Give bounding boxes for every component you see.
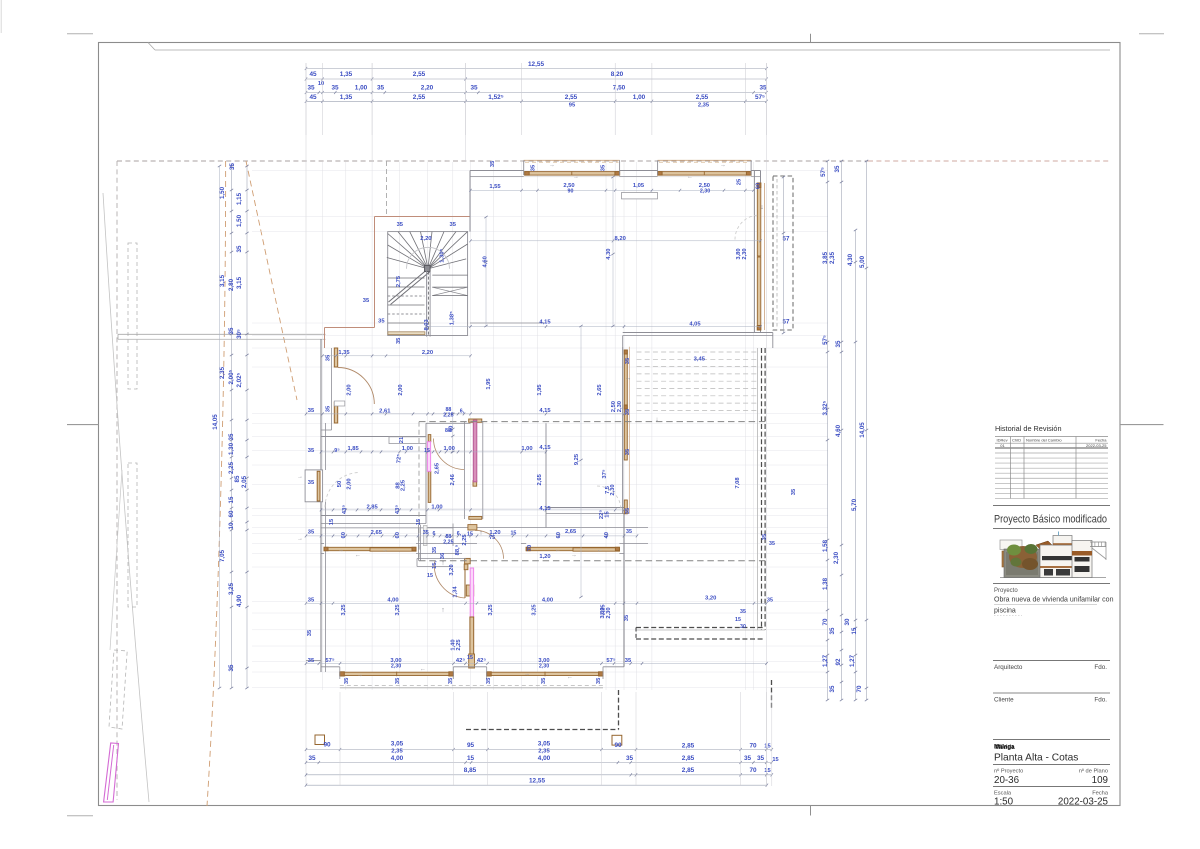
svg-text:2,25: 2,25	[443, 539, 453, 545]
svg-text:4,00: 4,00	[387, 598, 398, 604]
svg-text:1,50: 1,50	[219, 186, 226, 199]
svg-text:3,25: 3,25	[532, 604, 538, 616]
svg-text:36: 36	[440, 552, 446, 559]
svg-text:1:50: 1:50	[994, 797, 1014, 808]
svg-text:35: 35	[791, 488, 797, 495]
svg-text:3,25: 3,25	[341, 604, 347, 616]
svg-text:ChID: ChID	[1012, 438, 1021, 443]
svg-text:35: 35	[307, 85, 315, 92]
svg-text:8,03: 8,03	[424, 318, 430, 330]
svg-text:1,50: 1,50	[236, 214, 243, 227]
svg-text:1,00: 1,00	[402, 446, 413, 452]
svg-text:3,25: 3,25	[395, 604, 401, 616]
svg-text:35: 35	[625, 448, 631, 455]
svg-text:35: 35	[486, 677, 492, 684]
svg-text:1,55: 1,55	[489, 184, 501, 190]
svg-text:10: 10	[318, 81, 324, 87]
svg-text:35: 35	[228, 327, 235, 334]
svg-text:3,15: 3,15	[236, 276, 243, 289]
svg-text:57⁵: 57⁵	[820, 167, 827, 177]
svg-text:Nombre del Cambio: Nombre del Cambio	[1026, 438, 1062, 443]
svg-text:90: 90	[614, 742, 622, 749]
svg-text:1,52⁵: 1,52⁵	[488, 94, 503, 101]
svg-text:10: 10	[228, 522, 235, 529]
svg-text:14,05: 14,05	[859, 422, 866, 438]
svg-text:2,25: 2,25	[228, 461, 235, 474]
svg-text:15: 15	[416, 518, 422, 525]
svg-text:3,25: 3,25	[228, 582, 235, 595]
svg-text:←: ←	[355, 553, 361, 559]
svg-text:12,55: 12,55	[529, 777, 545, 784]
svg-text:6,: 6,	[457, 531, 462, 537]
svg-text:12,55: 12,55	[528, 61, 544, 68]
svg-text:35: 35	[377, 85, 385, 92]
svg-text:35: 35	[625, 408, 631, 415]
svg-text:1,58: 1,58	[822, 539, 829, 552]
svg-text:40: 40	[604, 532, 610, 538]
svg-text:2,35: 2,35	[538, 749, 550, 755]
svg-text:70: 70	[856, 685, 863, 692]
svg-text:Fecha: Fecha	[1095, 438, 1107, 443]
svg-text:nº de Plano: nº de Plano	[1079, 768, 1108, 775]
svg-text:Mérida: Mérida	[995, 745, 1015, 751]
svg-text:35: 35	[541, 677, 547, 684]
svg-text:2,30: 2,30	[700, 188, 710, 194]
svg-text:2022-03-25: 2022-03-25	[1058, 797, 1109, 808]
svg-text:35: 35	[829, 685, 836, 692]
svg-text:Cliente: Cliente	[994, 697, 1014, 704]
svg-text:2,65: 2,65	[371, 530, 383, 536]
svg-text:2,25: 2,25	[462, 534, 468, 546]
svg-text:2,00⁵: 2,00⁵	[228, 369, 235, 384]
svg-text:35: 35	[490, 160, 496, 167]
svg-text:35: 35	[829, 627, 836, 634]
svg-text:nº Proyecto: nº Proyecto	[994, 768, 1023, 775]
svg-text:42⁵: 42⁵	[477, 658, 486, 664]
svg-text:2,55: 2,55	[696, 94, 709, 101]
svg-text:35: 35	[307, 629, 313, 636]
svg-text:35: 35	[331, 85, 339, 92]
svg-text:35: 35	[432, 546, 438, 553]
svg-text:2,35: 2,35	[698, 103, 710, 109]
svg-text:IDRev: IDRev	[997, 438, 1008, 443]
svg-text:60: 60	[556, 532, 562, 538]
svg-text:→: →	[338, 548, 344, 554]
svg-text:Obra nueva de vivienda unifami: Obra nueva de vivienda unifamilar con	[994, 597, 1114, 604]
svg-text:3,85: 3,85	[822, 251, 829, 264]
svg-text:8,85: 8,85	[464, 767, 477, 774]
svg-text:1,27: 1,27	[849, 654, 856, 667]
svg-text:2,30: 2,30	[617, 401, 623, 412]
svg-text:1,00: 1,00	[355, 85, 368, 92]
svg-text:→: →	[720, 163, 726, 169]
svg-text:90: 90	[323, 742, 331, 749]
svg-text:60: 60	[341, 532, 347, 538]
svg-text:88,⁵: 88,⁵	[455, 544, 461, 555]
svg-text:35: 35	[308, 658, 315, 664]
svg-text:35: 35	[625, 507, 631, 514]
svg-text:←: ←	[567, 675, 573, 681]
svg-text:↓: ↓	[760, 204, 764, 211]
svg-text:1,05: 1,05	[633, 183, 645, 189]
svg-text:35: 35	[767, 598, 773, 604]
svg-text:4,00: 4,00	[391, 755, 404, 762]
svg-text:8,20: 8,20	[611, 71, 624, 78]
svg-text:95: 95	[569, 103, 576, 109]
svg-text:50: 50	[337, 481, 343, 487]
svg-text:35: 35	[625, 658, 632, 664]
svg-text:1,95: 1,95	[537, 384, 543, 396]
svg-text:90: 90	[568, 188, 574, 194]
svg-text:70: 70	[749, 742, 757, 749]
svg-text:60: 60	[228, 510, 235, 517]
svg-text:←: ←	[555, 548, 561, 554]
svg-text:15: 15	[467, 755, 475, 762]
svg-text:1,38: 1,38	[822, 577, 829, 590]
svg-text:35: 35	[326, 354, 332, 361]
svg-text:1,35: 1,35	[338, 350, 350, 356]
svg-text:1,34: 1,34	[453, 586, 459, 598]
svg-text:35: 35	[740, 609, 746, 615]
svg-text:70: 70	[749, 767, 757, 774]
svg-text:7,50: 7,50	[613, 85, 626, 92]
svg-text:70: 70	[527, 545, 533, 551]
svg-text:2,85: 2,85	[682, 755, 695, 762]
svg-text:35: 35	[308, 755, 316, 762]
svg-text:2,65: 2,65	[597, 384, 603, 396]
svg-text:2,35: 2,35	[391, 749, 403, 755]
svg-text:4,15: 4,15	[539, 506, 551, 512]
svg-text:4,15: 4,15	[539, 319, 551, 325]
svg-text:35: 35	[308, 480, 315, 486]
svg-text:2,55: 2,55	[565, 94, 578, 101]
svg-text:→: →	[549, 163, 555, 169]
svg-text:2,00: 2,00	[346, 478, 352, 489]
svg-text:2,20: 2,20	[421, 85, 434, 92]
svg-text:35: 35	[762, 533, 768, 540]
svg-text:45: 45	[309, 94, 317, 101]
svg-text:5,70: 5,70	[851, 498, 858, 511]
svg-text:109: 109	[1092, 775, 1108, 786]
svg-text:35: 35	[744, 755, 752, 762]
svg-text:2,55: 2,55	[413, 94, 426, 101]
svg-text:57⁵: 57⁵	[755, 94, 765, 101]
svg-text:2,00: 2,00	[398, 384, 404, 395]
svg-text:2,30: 2,30	[539, 664, 549, 670]
svg-text:2,20: 2,20	[420, 236, 431, 242]
svg-text:15: 15	[424, 448, 430, 454]
svg-text:35: 35	[326, 405, 332, 412]
svg-text:85: 85	[234, 475, 241, 482]
svg-text:→: →	[573, 174, 579, 180]
svg-text:3,20: 3,20	[705, 596, 716, 602]
svg-text:1,00: 1,00	[633, 94, 646, 101]
svg-text:4,60: 4,60	[482, 256, 488, 267]
svg-text:35: 35	[834, 165, 841, 172]
svg-text:←: ←	[687, 174, 693, 180]
svg-text:3,25: 3,25	[488, 604, 494, 616]
svg-text:35: 35	[397, 222, 404, 228]
svg-text:piscina: piscina	[994, 608, 1016, 615]
svg-text:43⁵: 43⁵	[395, 505, 401, 514]
svg-text:15: 15	[764, 768, 771, 774]
svg-text:1,15: 1,15	[236, 192, 243, 205]
svg-text:15: 15	[427, 573, 433, 579]
svg-text:30: 30	[844, 618, 851, 625]
svg-text:1,38⁵: 1,38⁵	[449, 311, 455, 325]
svg-text:→: →	[297, 474, 303, 480]
svg-text:57⁵: 57⁵	[606, 658, 615, 664]
svg-text:45: 45	[309, 71, 317, 78]
svg-text:2,25: 2,25	[456, 639, 462, 651]
svg-text:35: 35	[601, 164, 607, 171]
svg-text:35: 35	[363, 298, 370, 304]
svg-text:92: 92	[835, 658, 842, 665]
svg-text:15: 15	[467, 655, 473, 661]
svg-text:21: 21	[399, 436, 405, 443]
svg-text:1,35: 1,35	[340, 71, 353, 78]
svg-text:Fdo.: Fdo.	[1094, 697, 1107, 704]
svg-text:2,65: 2,65	[435, 462, 441, 474]
svg-text:57⁵: 57⁵	[822, 335, 829, 345]
svg-text:30⁵: 30⁵	[236, 329, 243, 339]
svg-text:7,08: 7,08	[735, 477, 741, 489]
svg-text:→: →	[571, 553, 577, 559]
svg-text:35: 35	[470, 85, 478, 92]
svg-text:35: 35	[423, 530, 429, 536]
svg-text:15: 15	[510, 530, 516, 536]
svg-text:88: 88	[445, 428, 451, 434]
svg-text:57⁵: 57⁵	[325, 658, 334, 664]
svg-text:15: 15	[228, 496, 235, 503]
svg-text:→: →	[625, 375, 632, 382]
svg-text:1,00: 1,00	[444, 446, 455, 452]
svg-text:2,75: 2,75	[396, 275, 402, 287]
svg-text:2,35: 2,35	[219, 366, 226, 379]
svg-text:9,25: 9,25	[574, 453, 580, 465]
svg-text:7,05: 7,05	[219, 549, 226, 562]
svg-text:←: ←	[420, 667, 426, 673]
svg-text:35: 35	[395, 677, 401, 684]
svg-text:4,30: 4,30	[847, 253, 854, 266]
svg-text:2,85: 2,85	[366, 505, 378, 511]
svg-text:8,20: 8,20	[615, 236, 626, 242]
svg-text:↓: ↓	[655, 416, 658, 423]
svg-text:72⁵: 72⁵	[396, 454, 402, 463]
svg-text:2,80: 2,80	[228, 278, 235, 291]
svg-text:35: 35	[759, 85, 767, 92]
svg-text:2,35: 2,35	[829, 251, 836, 264]
svg-text:4,05: 4,05	[689, 321, 701, 327]
svg-text:1,00: 1,00	[431, 505, 442, 511]
svg-text:↑: ↑	[479, 530, 483, 537]
svg-text:4,15: 4,15	[539, 408, 551, 414]
svg-text:35: 35	[236, 245, 243, 252]
svg-text:2,05: 2,05	[241, 475, 248, 488]
svg-text:1,30: 1,30	[228, 442, 235, 455]
svg-text:4,60: 4,60	[835, 424, 842, 437]
svg-text:35: 35	[625, 357, 631, 364]
svg-text:42⁵: 42⁵	[456, 658, 465, 664]
svg-text:35: 35	[596, 677, 602, 684]
svg-text:2,25: 2,25	[443, 412, 453, 418]
svg-text:Historial de Revisión: Historial de Revisión	[995, 424, 1062, 433]
svg-text:→: →	[297, 536, 303, 542]
svg-text:15: 15	[735, 617, 741, 623]
svg-text:35: 35	[228, 664, 235, 671]
svg-text:↑: ↑	[441, 607, 445, 614]
svg-text:Fdo.: Fdo.	[1094, 664, 1107, 671]
svg-text:14,05: 14,05	[212, 414, 219, 430]
svg-text:Arquitecto: Arquitecto	[994, 664, 1023, 671]
svg-text:4,30: 4,30	[606, 248, 612, 259]
svg-text:35: 35	[757, 755, 765, 762]
svg-text:2,30: 2,30	[742, 248, 748, 259]
svg-text:3,05: 3,05	[538, 741, 551, 748]
svg-text:2022-03-25: 2022-03-25	[1086, 443, 1107, 448]
svg-text:15: 15	[329, 518, 335, 525]
svg-text:2,25: 2,25	[401, 479, 407, 491]
svg-text:Planta Alta - Cotas: Planta Alta - Cotas	[994, 753, 1078, 764]
svg-text:←: ←	[597, 548, 603, 554]
svg-text:15: 15	[851, 627, 858, 634]
svg-text:2,02⁵: 2,02⁵	[236, 372, 243, 387]
svg-text:35: 35	[308, 598, 315, 604]
svg-text:↑: ↑	[441, 560, 445, 567]
svg-text:2,30: 2,30	[833, 551, 840, 564]
svg-text:15: 15	[772, 757, 778, 763]
svg-text:4,90: 4,90	[236, 594, 243, 607]
svg-text:1,30⁵: 1,30⁵	[440, 248, 446, 262]
svg-text:43⁵: 43⁵	[342, 505, 348, 514]
svg-text:6: 6	[433, 531, 436, 537]
svg-text:2,65: 2,65	[537, 473, 543, 485]
svg-text:15: 15	[605, 511, 611, 518]
svg-text:9⁵: 9⁵	[334, 448, 340, 454]
svg-text:2,20: 2,20	[422, 350, 433, 356]
svg-text:→: →	[524, 671, 530, 677]
svg-text:35: 35	[228, 433, 235, 440]
svg-text:1,35: 1,35	[340, 94, 353, 101]
svg-text:37⁵: 37⁵	[602, 469, 608, 478]
svg-text:35: 35	[308, 530, 315, 536]
svg-text:→: →	[357, 673, 363, 679]
svg-text:3,15: 3,15	[219, 274, 226, 287]
svg-text:35: 35	[448, 677, 454, 684]
svg-text:35: 35	[344, 677, 350, 684]
svg-text:2,30: 2,30	[606, 607, 612, 618]
svg-text:4,00: 4,00	[538, 755, 551, 762]
svg-text:1,85: 1,85	[347, 446, 359, 452]
svg-text:25: 25	[737, 178, 743, 185]
svg-text:4,00: 4,00	[542, 598, 553, 604]
svg-text:3,32⁵: 3,32⁵	[822, 400, 829, 415]
svg-text:60: 60	[395, 532, 401, 538]
svg-text:60: 60	[756, 183, 762, 189]
svg-text:15: 15	[764, 743, 771, 749]
svg-text:2,30: 2,30	[391, 664, 401, 670]
svg-text:35: 35	[229, 163, 236, 170]
svg-text:4,15: 4,15	[539, 445, 551, 451]
svg-text:3,20: 3,20	[449, 564, 455, 575]
svg-text:35: 35	[378, 319, 385, 325]
svg-text:01: 01	[1000, 443, 1005, 448]
svg-text:35: 35	[308, 448, 315, 454]
svg-text:3,05: 3,05	[391, 741, 404, 748]
svg-text:35: 35	[308, 408, 315, 414]
svg-text:35: 35	[396, 337, 402, 344]
svg-text:3,45: 3,45	[694, 357, 706, 363]
svg-text:70: 70	[822, 618, 829, 625]
svg-text:15,: 15,	[432, 561, 438, 569]
svg-text:2,55: 2,55	[413, 71, 426, 78]
svg-text:35: 35	[449, 222, 456, 228]
svg-text:20-36: 20-36	[994, 775, 1020, 786]
svg-text:2,85: 2,85	[682, 767, 695, 774]
svg-text:35: 35	[769, 541, 775, 547]
svg-text:75: 75	[489, 535, 495, 541]
svg-text:95: 95	[467, 742, 475, 749]
svg-text:1,95: 1,95	[486, 378, 492, 390]
svg-text:30: 30	[740, 624, 746, 630]
svg-text:1,27: 1,27	[822, 654, 829, 667]
svg-text:2,30: 2,30	[610, 484, 616, 495]
svg-text:5,00: 5,00	[859, 255, 866, 268]
svg-text:6,: 6,	[460, 408, 465, 414]
svg-text:35: 35	[624, 614, 630, 621]
svg-text:2,00: 2,00	[346, 384, 352, 395]
svg-text:2,61: 2,61	[379, 408, 391, 414]
svg-text:35: 35	[626, 755, 634, 762]
svg-text:1,00: 1,00	[521, 446, 532, 452]
svg-text:1,20: 1,20	[539, 554, 550, 560]
svg-text:2,46: 2,46	[450, 473, 456, 485]
svg-text:2,65: 2,65	[565, 529, 577, 535]
svg-text:2,85: 2,85	[682, 742, 695, 749]
svg-text:35: 35	[835, 340, 842, 347]
svg-text:→: →	[382, 548, 388, 554]
svg-text:Proyecto: Proyecto	[994, 588, 1018, 594]
svg-text:35: 35	[530, 164, 536, 171]
svg-text:Proyecto Básico modificado: Proyecto Básico modificado	[994, 514, 1107, 526]
svg-text:35: 35	[626, 529, 632, 535]
